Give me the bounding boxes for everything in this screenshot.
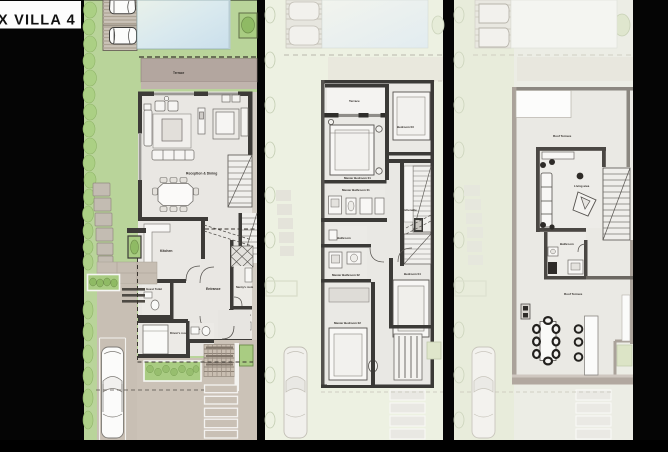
svg-text:Bathroom: Bathroom xyxy=(560,242,574,246)
svg-text:Roof Terrace: Roof Terrace xyxy=(553,134,572,138)
svg-text:Guest Toilet: Guest Toilet xyxy=(146,287,162,291)
svg-text:Nanny's room: Nanny's room xyxy=(236,285,254,289)
svg-text:Terrace: Terrace xyxy=(173,71,185,75)
svg-text:Entrance: Entrance xyxy=(206,287,221,291)
svg-text:Living area: Living area xyxy=(574,184,590,188)
svg-text:Kitchen: Kitchen xyxy=(160,249,172,253)
svg-text:Master Bedroom 02: Master Bedroom 02 xyxy=(334,321,361,325)
svg-text:Bedroom 03: Bedroom 03 xyxy=(397,125,414,129)
svg-text:X VILLA 4: X VILLA 4 xyxy=(0,13,76,29)
svg-text:Reception & Dining: Reception & Dining xyxy=(186,172,217,176)
svg-text:Master Bedroom 01: Master Bedroom 01 xyxy=(344,176,371,180)
svg-text:Master Bathroom 02: Master Bathroom 02 xyxy=(332,273,360,277)
svg-text:Roof Terrace: Roof Terrace xyxy=(564,292,583,296)
svg-text:Bedroom 04: Bedroom 04 xyxy=(404,272,421,276)
svg-text:Bathroom: Bathroom xyxy=(337,236,351,240)
svg-text:Master Bathroom 01: Master Bathroom 01 xyxy=(342,188,370,192)
svg-text:Driver's room: Driver's room xyxy=(170,331,189,335)
svg-text:Terrace: Terrace xyxy=(349,99,360,103)
